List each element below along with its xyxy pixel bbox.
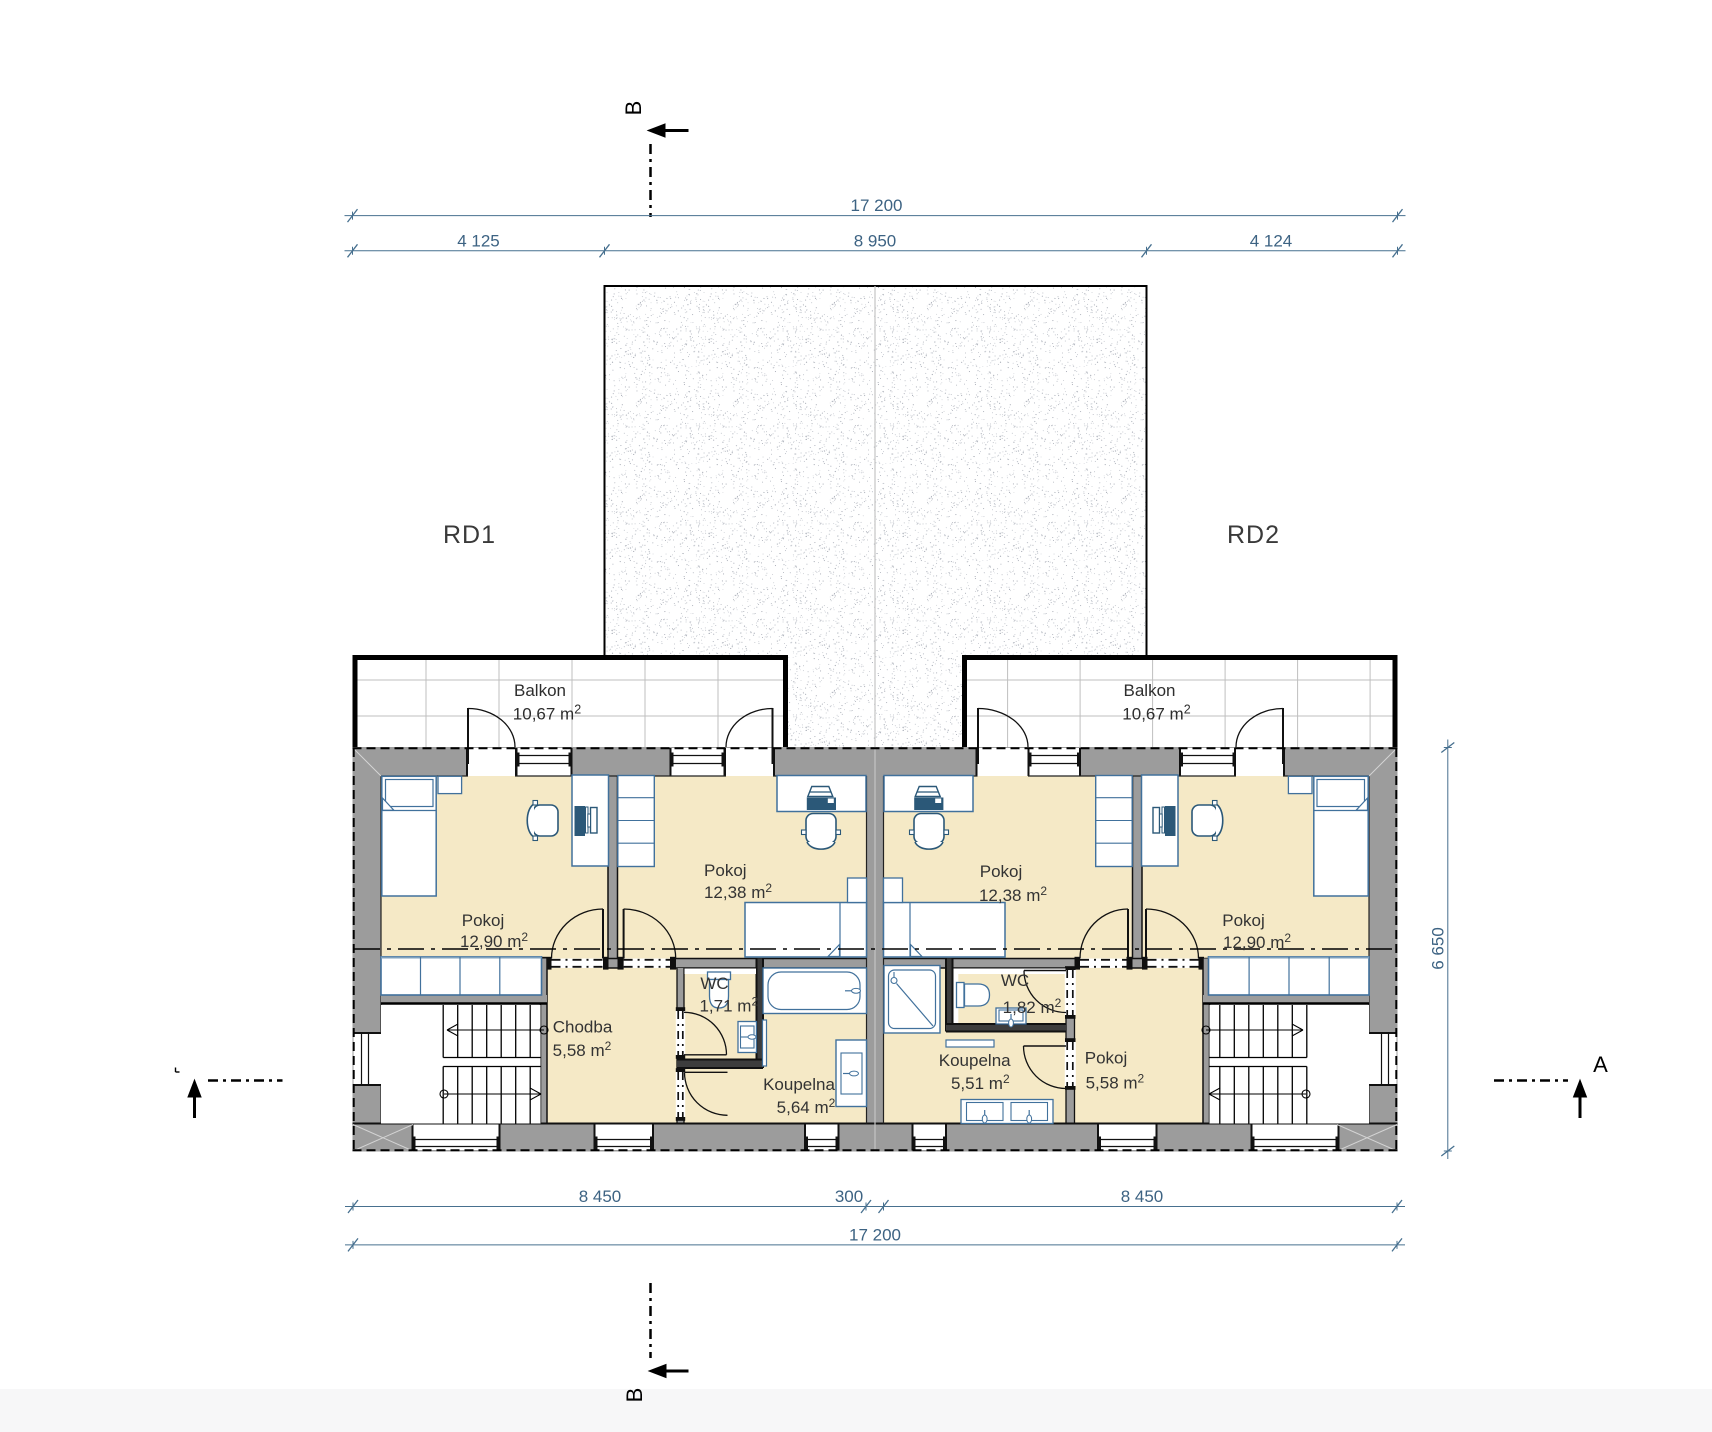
svg-text:6 650: 6 650 <box>1429 927 1448 970</box>
svg-text:8 450: 8 450 <box>579 1187 622 1206</box>
svg-text:Pokoj: Pokoj <box>980 862 1023 881</box>
svg-text:5,58 m2: 5,58 m2 <box>1086 1072 1145 1093</box>
svg-text:Pokoj: Pokoj <box>1085 1049 1128 1068</box>
svg-text:4 124: 4 124 <box>1250 231 1293 250</box>
svg-text:Koupelna: Koupelna <box>763 1075 835 1094</box>
svg-text:Balkon: Balkon <box>514 681 566 700</box>
svg-text:Koupelna: Koupelna <box>939 1051 1011 1070</box>
svg-text:4 125: 4 125 <box>457 231 500 250</box>
svg-text:8 450: 8 450 <box>1121 1187 1164 1206</box>
svg-text:RD2: RD2 <box>1227 521 1280 549</box>
svg-text:17 200: 17 200 <box>849 1225 901 1244</box>
svg-text:B: B <box>621 101 646 116</box>
svg-text:B: B <box>622 1388 647 1403</box>
svg-text:8 950: 8 950 <box>854 231 897 250</box>
svg-text:12,90 m2: 12,90 m2 <box>1223 931 1291 952</box>
svg-text:5,58 m2: 5,58 m2 <box>553 1039 612 1060</box>
svg-text:1,71 m2: 1,71 m2 <box>699 995 758 1016</box>
svg-text:300: 300 <box>835 1187 863 1206</box>
svg-text:12,38 m2: 12,38 m2 <box>979 884 1047 905</box>
svg-text:10,67 m2: 10,67 m2 <box>513 703 581 724</box>
svg-text:Pokoj: Pokoj <box>462 911 505 930</box>
svg-text:WC: WC <box>1001 971 1029 990</box>
svg-text:5,51 m2: 5,51 m2 <box>951 1072 1010 1093</box>
svg-text:WC: WC <box>700 974 728 993</box>
svg-text:10,67 m2: 10,67 m2 <box>1122 703 1190 724</box>
svg-text:12,90 m2: 12,90 m2 <box>460 930 528 951</box>
svg-text:17 200: 17 200 <box>851 196 903 215</box>
svg-text:5,64 m2: 5,64 m2 <box>777 1096 836 1117</box>
svg-text:A: A <box>1593 1052 1608 1077</box>
svg-text:RD1: RD1 <box>443 521 496 549</box>
svg-text:12,38 m2: 12,38 m2 <box>704 881 772 902</box>
svg-text:Chodba: Chodba <box>553 1018 613 1037</box>
svg-text:Pokoj: Pokoj <box>704 861 747 880</box>
svg-text:Balkon: Balkon <box>1124 681 1176 700</box>
svg-text:1,82 m2: 1,82 m2 <box>1003 996 1062 1017</box>
svg-text:Pokoj: Pokoj <box>1222 911 1265 930</box>
